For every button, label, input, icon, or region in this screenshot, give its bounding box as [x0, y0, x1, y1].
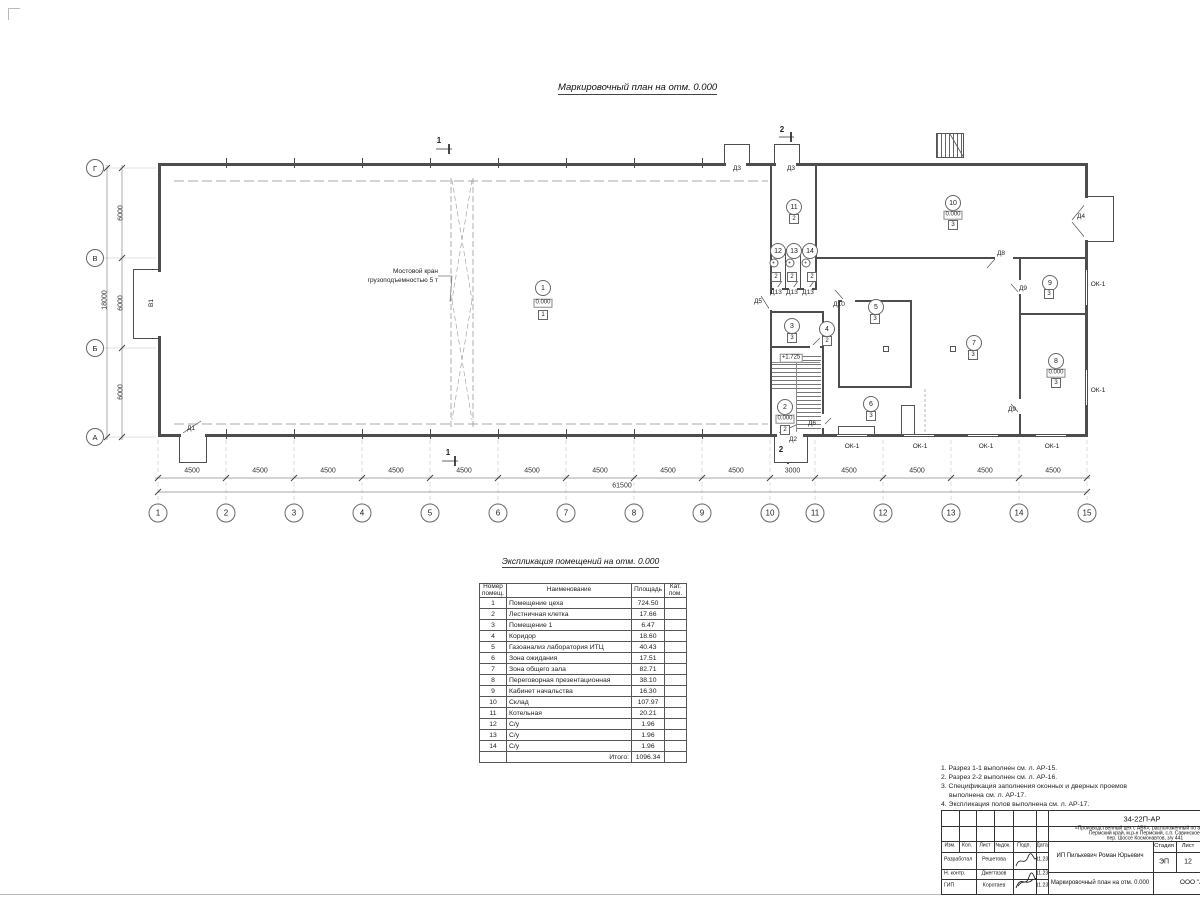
note-line: 4. Экспликация полов выполнена см. л. АР…	[941, 801, 1163, 810]
floor-type-box: 3	[968, 350, 978, 360]
grid-bubble-row: Б	[86, 339, 104, 357]
dimension-label: 6000	[118, 295, 125, 311]
tb-list-value: 12	[1184, 859, 1192, 866]
floor-type-box: 2	[807, 272, 817, 282]
tb-col-kol: Кол.	[962, 843, 972, 848]
crane-leader-line	[438, 276, 452, 302]
room-name-cell: Лестничная клетка	[507, 609, 632, 620]
room-number-cell: 10	[480, 697, 507, 708]
crane-label: Мостовой кран	[393, 269, 438, 276]
toilet-icon	[769, 258, 778, 267]
floor-type-box: 3	[1051, 378, 1061, 388]
room-area-cell: 17.51	[632, 653, 665, 664]
project-address-line: пер. Шоссе Космонавтов, з/у 441	[1107, 837, 1183, 842]
floor-type-box: 2	[822, 336, 832, 346]
door-label: Д9	[1019, 286, 1027, 293]
room-number-bubble: 2	[777, 399, 793, 415]
floor-type-box: 2	[780, 425, 790, 435]
window-symbol	[1036, 434, 1066, 437]
title-block: 34-22П-АР «Производственный цех с АБК», …	[941, 810, 1200, 895]
gate-label: В1	[149, 299, 156, 307]
door-opening	[810, 345, 820, 349]
plan-wall	[838, 300, 840, 388]
column-mark	[883, 346, 889, 352]
door-opening	[821, 414, 825, 428]
door-label: Д8	[997, 251, 1005, 258]
window-label: ОК-1	[1091, 282, 1106, 289]
note-line: 2. Разрез 2-2 выполнен см. л. АР-16.	[941, 774, 1163, 783]
room-number-cell: 5	[480, 642, 507, 653]
room-category-cell	[665, 631, 687, 642]
dimension-label: 4500	[728, 468, 744, 475]
table-row: 7Зона общего зала82.71	[480, 664, 687, 675]
room-area-cell: 20.21	[632, 708, 665, 719]
room-name-cell: Зона ожидания	[507, 653, 632, 664]
grid-bubble-row: А	[86, 428, 104, 446]
room-category-cell	[665, 664, 687, 675]
table-row: 9Кабинет начальства16.30	[480, 686, 687, 697]
tb-sheet-title: Маркировочный план на отм. 0.000	[1051, 880, 1149, 886]
room-number-bubble: 10	[945, 195, 961, 211]
window-label: ОК-1	[979, 444, 994, 451]
total-row-spacer	[480, 752, 507, 763]
plan-wall	[785, 251, 786, 290]
grid-bubble-column: 5	[421, 504, 440, 523]
doc-number: 34-22П-АР	[1123, 815, 1160, 823]
table-row: 4Коридор18.60	[480, 631, 687, 642]
entry-vestibule	[179, 437, 207, 463]
grid-bubble-column: 7	[557, 504, 576, 523]
table-row: 6Зона ожидания17.51	[480, 653, 687, 664]
table-row: 5Газоанализ лаборатория ИТЦ40.43	[480, 642, 687, 653]
dimension-label: 4500	[524, 468, 540, 475]
entry-vestibule	[724, 144, 750, 163]
room-area-cell: 1.96	[632, 741, 665, 752]
dimension-label: 4500	[977, 468, 993, 475]
toilet-icon	[801, 258, 810, 267]
room-number-bubble: 12	[770, 243, 786, 259]
room-category-cell	[665, 741, 687, 752]
column-tick	[430, 158, 431, 168]
column-tick	[634, 158, 635, 168]
grid-bubble-column: 4	[353, 504, 372, 523]
column-tick	[362, 158, 363, 168]
dimension-label: 4500	[1045, 468, 1061, 475]
room-number-cell: 11	[480, 708, 507, 719]
toilet-icon	[785, 258, 794, 267]
table-row: 3Помещение 16.47	[480, 620, 687, 631]
window-label: ОК-1	[845, 444, 860, 451]
room-category-cell	[665, 609, 687, 620]
tb-col-data: Дата	[1036, 843, 1048, 848]
note-line: 1. Разрез 1-1 выполнен см. л. АР-15.	[941, 765, 1163, 774]
column-mark	[950, 346, 956, 352]
column-tick	[294, 158, 295, 168]
tb-client: ИП Пилькевич Роман Юрьевич	[1057, 853, 1144, 859]
room-number-cell: 1	[480, 598, 507, 609]
col-header-category: Кат. пом.	[665, 584, 687, 598]
room-schedule-table: Номер помещ. Наименование Площадь Кат. п…	[479, 583, 687, 763]
dimension-label: 4500	[592, 468, 608, 475]
section-flags	[436, 137, 794, 461]
tb-col-list: Лист	[979, 843, 990, 848]
room-name-cell: Газоанализ лаборатория ИТЦ	[507, 642, 632, 653]
room-name-cell: Зона общего зала	[507, 664, 632, 675]
grid-bubble-column: 15	[1078, 504, 1097, 523]
note-line: 3. Спецификация заполнения оконных и две…	[941, 783, 1163, 801]
elevation-label: +1.725	[780, 354, 803, 363]
room-area-cell: 40.43	[632, 642, 665, 653]
room-number-cell: 14	[480, 741, 507, 752]
grid-bubble-column: 13	[942, 504, 961, 523]
window-label: ОК-1	[1091, 388, 1106, 395]
plan-wall	[800, 251, 801, 290]
dimension-total-label: 61500	[612, 483, 631, 490]
dimension-label: 4500	[252, 468, 268, 475]
room-number-cell: 2	[480, 609, 507, 620]
stair-treads	[772, 364, 796, 390]
col-header-area: Площадь	[632, 584, 665, 598]
tb-stage-label: Стадия	[1154, 844, 1174, 850]
room-area-cell: 16.30	[632, 686, 665, 697]
room-number-bubble: 6	[863, 396, 879, 412]
tb-name: Джегтазов	[982, 871, 1007, 876]
room-name-cell: Кабинет начальства	[507, 686, 632, 697]
room-name-cell: Переговорная презентационная	[507, 675, 632, 686]
column-tick	[566, 158, 567, 168]
table-row: 8Переговорная презентационная38.10	[480, 675, 687, 686]
tb-role: ГИП	[944, 883, 954, 888]
dimension-label: 4500	[909, 468, 925, 475]
grid-bubble-row: В	[86, 249, 104, 267]
window-label: ОК-1	[913, 444, 928, 451]
door-label: Д4	[1077, 214, 1085, 221]
room-category-cell	[665, 686, 687, 697]
tb-list-label: Лист	[1182, 844, 1195, 850]
door-label: Д2	[789, 437, 797, 444]
tb-role: Разработал	[944, 857, 972, 862]
room-category-cell	[665, 719, 687, 730]
door-label: Д3	[787, 166, 795, 173]
grid-bubble-column: 2	[217, 504, 236, 523]
room-number-cell: 4	[480, 631, 507, 642]
tb-company: ООО "Альф	[1180, 880, 1200, 887]
table-row: 10Склад107.97	[480, 697, 687, 708]
dimension-label: 4500	[660, 468, 676, 475]
column-tick	[498, 158, 499, 168]
tb-col-ndok: №док.	[995, 843, 1010, 848]
crane-bridge	[451, 178, 473, 427]
grid-bubble-column: 9	[693, 504, 712, 523]
grid-bubble-column: 6	[489, 504, 508, 523]
room-number-bubble: 8	[1048, 353, 1064, 369]
room-number-cell: 3	[480, 620, 507, 631]
crane-rails	[174, 181, 768, 424]
notes: 1. Разрез 1-1 выполнен см. л. АР-15. 2. …	[941, 765, 1163, 810]
floor-type-box: 3	[866, 411, 876, 421]
dimension-label: 4500	[456, 468, 472, 475]
room-number-bubble: 3	[784, 318, 800, 334]
room-number-cell: 9	[480, 686, 507, 697]
room-name-cell: С/у	[507, 730, 632, 741]
grid-lines	[158, 440, 1087, 504]
tb-role: Н. контр.	[944, 871, 965, 876]
room-name-cell: Коридор	[507, 631, 632, 642]
section-flag-ticks	[449, 132, 791, 466]
room-number-bubble: 7	[966, 335, 982, 351]
column-tick	[294, 429, 295, 439]
floor-type-box: 2	[787, 272, 797, 282]
tb-stage-value: ЭП	[1159, 859, 1169, 866]
dimension-label: 4500	[841, 468, 857, 475]
tb-col-izm: Изм.	[944, 843, 955, 848]
room-category-cell	[665, 708, 687, 719]
plan-wall	[770, 311, 824, 313]
col-header-number: Номер помещ.	[480, 584, 507, 598]
total-label: Итого:	[507, 752, 632, 763]
grid-bubble-column: 11	[806, 504, 825, 523]
plan-wall	[158, 163, 1088, 166]
floor-type-box: 2	[771, 272, 781, 282]
room-number-bubble: 5	[868, 299, 884, 315]
floor-type-box: 3	[870, 314, 880, 324]
table-row: 14С/у1.96	[480, 741, 687, 752]
room-number-bubble: 13	[786, 243, 802, 259]
floor-type-box: 3	[1044, 289, 1054, 299]
entry-vestibule	[1088, 196, 1114, 242]
tb-col-podp: Подп.	[1017, 843, 1031, 848]
window-symbol	[968, 434, 998, 437]
room-name-cell: Помещение 1	[507, 620, 632, 631]
room-category-cell	[665, 653, 687, 664]
grid-bubble-column: 1	[149, 504, 168, 523]
col-header-name: Наименование	[507, 584, 632, 598]
table-row: 2Лестничная клетка17.66	[480, 609, 687, 620]
crane-label: грузоподъемностью 5 т	[368, 278, 438, 285]
floor-type-box: 3	[948, 220, 958, 230]
room-name-cell: С/у	[507, 741, 632, 752]
shaft	[901, 405, 915, 435]
table-row: 11Котельная20.21	[480, 708, 687, 719]
room-area-cell: 107.97	[632, 697, 665, 708]
room-number-bubble: 11	[786, 199, 802, 215]
room-name-cell: Помещение цеха	[507, 598, 632, 609]
room-category-cell	[665, 697, 687, 708]
floor-type-box: 2	[789, 214, 799, 224]
total-value: 1096.34	[632, 752, 665, 763]
room-name-cell: Котельная	[507, 708, 632, 719]
dimension-label: 3000	[785, 468, 801, 475]
column-tick	[362, 429, 363, 439]
room-category-cell	[665, 730, 687, 741]
window-label: ОК-1	[1045, 444, 1060, 451]
door-label: Д13	[802, 290, 814, 297]
grid-bubble-column: 10	[761, 504, 780, 523]
column-tick	[702, 158, 703, 168]
grid-bubble-column: 8	[625, 504, 644, 523]
plan-wall	[817, 257, 1088, 259]
window-symbol	[1085, 270, 1088, 305]
elevation-label: 0.000	[533, 299, 552, 308]
column-tick	[702, 429, 703, 439]
signature-icon	[1014, 870, 1038, 892]
room-area-cell: 82.71	[632, 664, 665, 675]
grid-bubble-row: Г	[86, 159, 104, 177]
column-tick	[430, 429, 431, 439]
tb-name: Решетова	[982, 857, 1006, 862]
elevation-label: 0.000	[775, 415, 794, 424]
floor-type-box: 3	[787, 333, 797, 343]
column-tick	[226, 158, 227, 168]
room-category-cell	[665, 675, 687, 686]
room-number-cell: 6	[480, 653, 507, 664]
section-marker: 2	[780, 126, 784, 134]
entry-vestibule	[774, 144, 800, 163]
signature-icon	[1014, 852, 1038, 870]
plan-wall	[1019, 313, 1088, 315]
dimension-label: 4500	[388, 468, 404, 475]
grid-bubble-column: 14	[1010, 504, 1029, 523]
dimension-label: 6000	[118, 384, 125, 400]
door-label: Д5	[754, 299, 762, 306]
grid-bubble-column: 3	[285, 504, 304, 523]
room-area-cell: 1.96	[632, 730, 665, 741]
column-tick	[566, 429, 567, 439]
dimension-label: 6000	[118, 205, 125, 221]
plan-wall	[158, 434, 1088, 437]
platform	[838, 426, 875, 435]
room-area-cell: 1.96	[632, 719, 665, 730]
room-number-bubble: 1	[535, 280, 551, 296]
grid-bubble-column: 12	[874, 504, 893, 523]
door-leaves	[183, 150, 1086, 433]
column-tick	[634, 429, 635, 439]
door-label: Д13	[786, 290, 798, 297]
floor-type-box: 1	[538, 310, 548, 320]
room-category-cell	[665, 598, 687, 609]
room-area-cell: 18.60	[632, 631, 665, 642]
door-opening	[769, 294, 773, 310]
column-tick	[498, 429, 499, 439]
room-area-cell: 38.10	[632, 675, 665, 686]
total-cat-spacer	[665, 752, 687, 763]
door-label: Д13	[770, 290, 782, 297]
door-label: Д3	[733, 166, 741, 173]
section-marker: 2	[779, 446, 783, 454]
crane-cross	[452, 180, 472, 420]
room-name-cell: Склад	[507, 697, 632, 708]
room-area-cell: 724.50	[632, 598, 665, 609]
plan-wall	[838, 386, 912, 388]
dimension-total-label: 18000	[102, 290, 109, 309]
section-marker: 1	[437, 137, 441, 145]
door-label: Д6	[808, 421, 816, 428]
table-row: 13С/у1.96	[480, 730, 687, 741]
room-number-cell: 12	[480, 719, 507, 730]
dimension-label: 4500	[320, 468, 336, 475]
room-name-cell: С/у	[507, 719, 632, 730]
window-symbol	[1085, 370, 1088, 405]
room-area-cell: 17.66	[632, 609, 665, 620]
door-label: Д10	[833, 302, 845, 309]
table-row: 12С/у1.96	[480, 719, 687, 730]
room-number-cell: 8	[480, 675, 507, 686]
section-marker: 1	[446, 449, 450, 457]
tb-name: Коротаев	[983, 883, 1005, 888]
elevation-label: 0.000	[1046, 369, 1065, 378]
door-label: Д1	[187, 426, 195, 433]
room-category-cell	[665, 642, 687, 653]
dimension-ticks	[104, 165, 1090, 495]
exterior-stair-hatch	[936, 133, 964, 158]
column-tick	[226, 429, 227, 439]
room-number-bubble: 4	[819, 321, 835, 337]
room-area-cell: 6.47	[632, 620, 665, 631]
room-number-cell: 13	[480, 730, 507, 741]
door-label: Д9	[1008, 407, 1016, 414]
door-opening	[1018, 399, 1022, 414]
room-category-cell	[665, 620, 687, 631]
dimension-label: 4500	[184, 468, 200, 475]
plan-wall	[910, 300, 912, 388]
elevation-label: 0.000	[943, 211, 962, 220]
table-row: 1Помещение цеха724.50	[480, 598, 687, 609]
room-number-bubble: 14	[802, 243, 818, 259]
room-number-cell: 7	[480, 664, 507, 675]
